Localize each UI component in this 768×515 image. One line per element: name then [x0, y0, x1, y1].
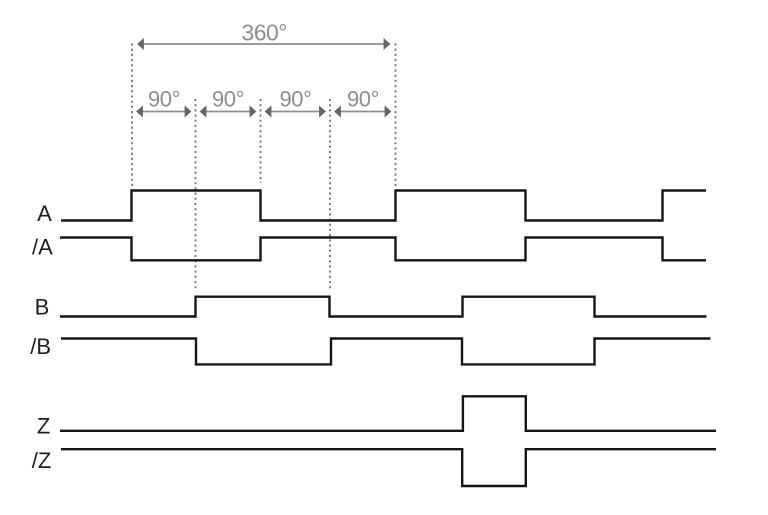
- svg-text:/A: /A: [32, 234, 53, 259]
- svg-text:90°: 90°: [279, 87, 311, 112]
- svg-text:90°: 90°: [212, 87, 244, 112]
- svg-text:B: B: [35, 295, 50, 320]
- svg-text:90°: 90°: [347, 87, 379, 112]
- svg-text:360°: 360°: [241, 20, 287, 46]
- svg-text:90°: 90°: [148, 87, 180, 112]
- svg-text:A: A: [37, 201, 52, 226]
- svg-text:Z: Z: [37, 414, 50, 439]
- svg-text:/Z: /Z: [32, 448, 52, 473]
- svg-text:/B: /B: [30, 334, 51, 359]
